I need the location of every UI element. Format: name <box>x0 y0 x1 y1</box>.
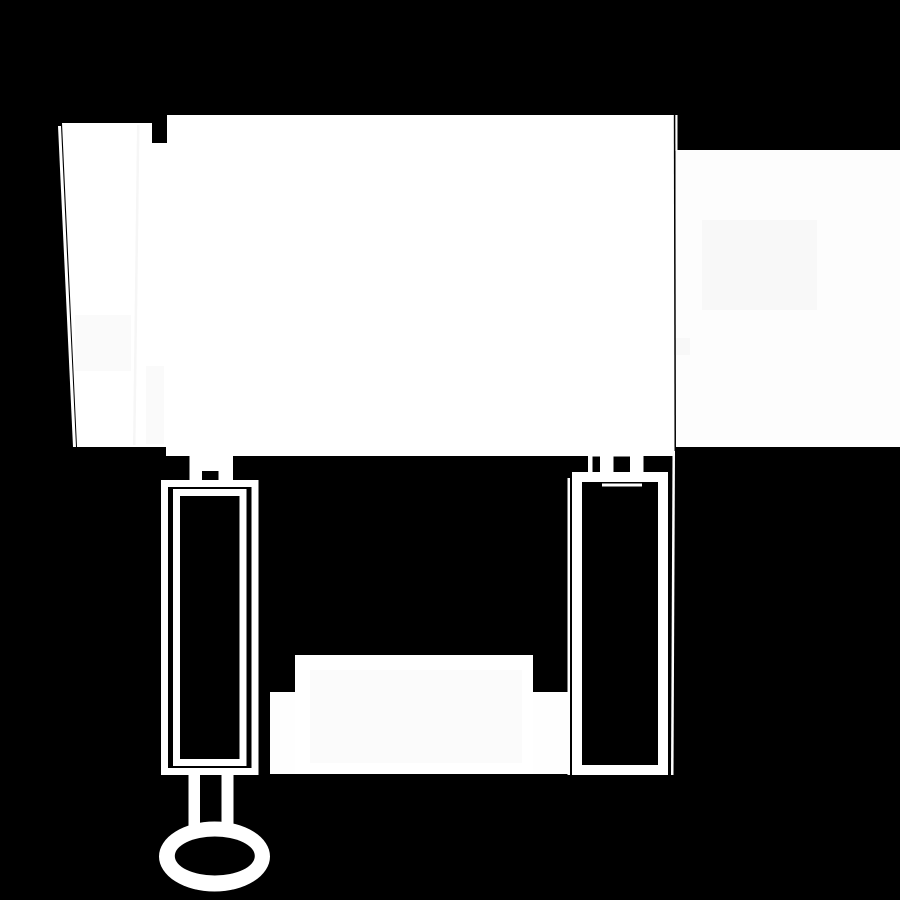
scene-canvas <box>0 0 900 900</box>
right-post-inner-top-line <box>602 484 642 487</box>
stem-left-bar <box>189 774 201 827</box>
wall-shade-patch-1 <box>702 220 817 310</box>
bench-left-foot <box>270 692 295 774</box>
right-post-frame <box>577 477 663 770</box>
right-post-right-sliver <box>671 451 675 775</box>
right-post-neck-notch-1 <box>593 457 601 473</box>
stem-right-bar <box>222 774 234 827</box>
panel-shade-column <box>146 366 164 444</box>
scene-svg <box>0 0 900 900</box>
left-post-neck-notch <box>202 471 219 481</box>
wall-sliver-top <box>675 115 678 151</box>
bench-right-foot <box>533 692 570 774</box>
left-post-inner-frame <box>177 493 244 763</box>
bench-inner-shade <box>310 670 522 763</box>
ring-hole <box>175 837 255 876</box>
panel-shade-patch <box>75 315 131 371</box>
wall-shade-patch-2 <box>676 338 691 355</box>
right-post-neck-notch-2 <box>614 457 631 473</box>
